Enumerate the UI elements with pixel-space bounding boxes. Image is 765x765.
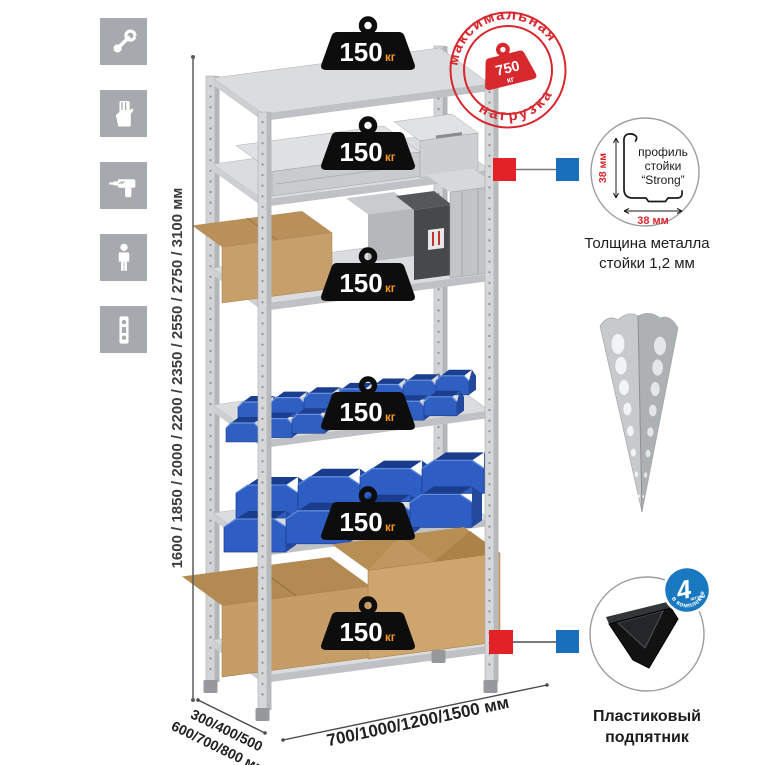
load-unit: кг <box>385 632 396 644</box>
weight-badge-6: 150 кг <box>321 599 415 650</box>
profile-caption: Толщина металла стойки 1,2 мм <box>562 234 732 274</box>
infographic-canvas: 150 кг 150 кг 150 кг 150 кг 150 кг <box>0 0 765 765</box>
profile-label-line2: стойки <box>645 159 682 173</box>
profile-caption-line2: стойки 1,2 мм <box>562 254 732 274</box>
load-value: 150 <box>339 137 382 167</box>
load-value: 150 <box>339 268 382 298</box>
blue-marker-top <box>556 158 579 181</box>
profile-dim-vertical: 38 мм <box>597 153 609 183</box>
weight-badge-4: 150 кг <box>321 379 415 430</box>
weight-badge-2: 150 кг <box>321 119 415 170</box>
foot-caption-line1: Пластиковый <box>562 706 732 727</box>
weight-badge-5: 150 кг <box>321 489 415 540</box>
height-dimension-label: 1600 / 1850 / 2000 / 2200 / 2350 / 2550 … <box>163 58 193 698</box>
connector-top <box>493 158 579 181</box>
profile-dim-horizontal: 38 мм <box>637 215 669 227</box>
weight-badge-3: 150 кг <box>321 250 415 301</box>
red-marker-bottom <box>489 630 513 654</box>
load-value: 150 <box>339 507 382 537</box>
red-marker-top <box>493 158 516 181</box>
load-unit: кг <box>385 522 396 534</box>
load-unit: кг <box>385 152 396 164</box>
profile-label-line1: профиль <box>638 145 688 159</box>
foot-caption-line2: подпятник <box>562 727 732 748</box>
blue-marker-bottom <box>556 630 579 653</box>
profile-caption-line1: Толщина металла <box>562 234 732 254</box>
weight-badge-1: 150 кг <box>321 19 415 70</box>
load-value: 150 <box>339 397 382 427</box>
profile-callout: 38 мм 38 мм профиль стойки “Strong” <box>588 116 706 234</box>
profile-label-line3: “Strong” <box>641 173 684 187</box>
stamp-weight-icon: 750 кг <box>476 39 537 91</box>
load-value: 150 <box>339 617 382 647</box>
max-load-stamp: максимальная нагрузка 750 кг <box>446 8 570 132</box>
load-value: 150 <box>339 37 382 67</box>
foot-caption: Пластиковый подпятник <box>562 706 732 748</box>
load-unit: кг <box>385 283 396 295</box>
load-unit: кг <box>385 52 396 64</box>
stamp-arc-bottom-text: нагрузка <box>473 82 562 132</box>
foot-callout: 4 штуки в комплекте <box>583 556 733 708</box>
connector-bottom <box>489 630 579 654</box>
load-unit: кг <box>385 412 396 424</box>
corner-profile-image <box>588 302 708 527</box>
